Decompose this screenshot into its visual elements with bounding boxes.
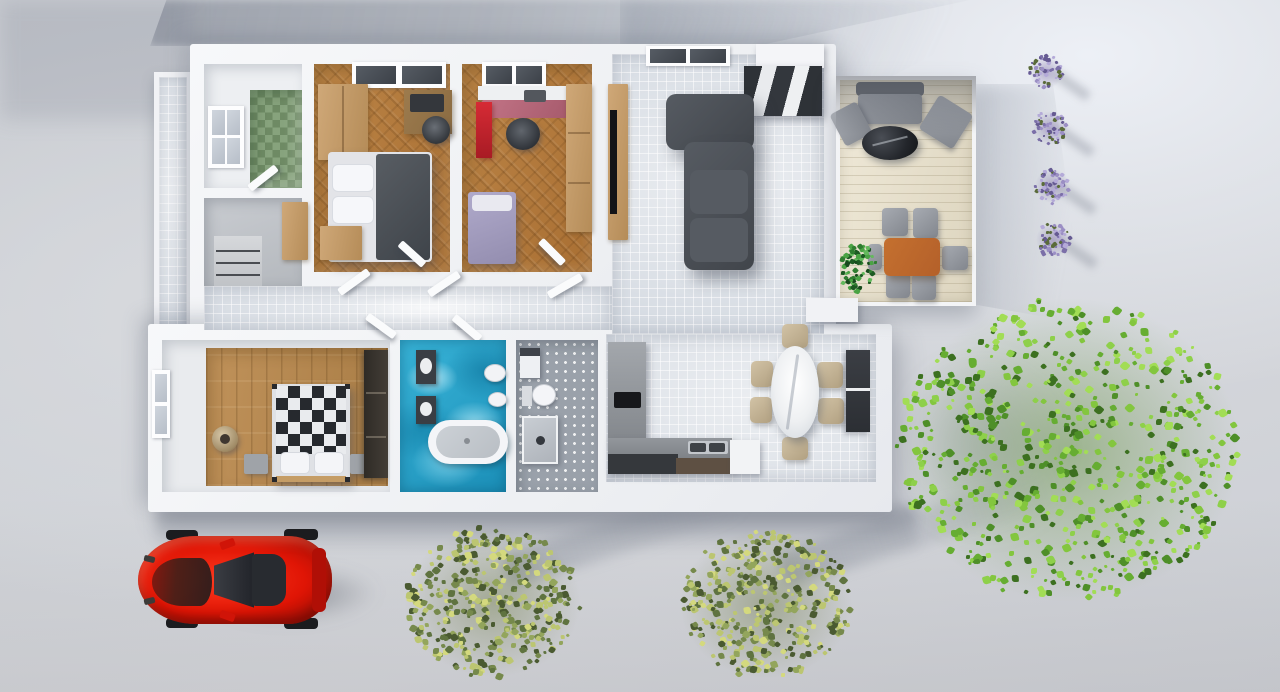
step-line (216, 250, 260, 252)
pillow (314, 452, 344, 474)
cooktop (614, 392, 641, 408)
dining-chair (817, 362, 843, 388)
step-line (216, 274, 260, 276)
window-pane (650, 49, 686, 63)
cabinet-front-wood (676, 458, 730, 474)
checkered-duvet (276, 386, 346, 454)
window-pane (212, 110, 225, 135)
window-pane (516, 66, 542, 84)
window-pane (227, 110, 240, 135)
laptop (410, 94, 444, 112)
window-pane (690, 49, 726, 63)
credenza (756, 44, 824, 68)
living-window (646, 46, 730, 66)
bathtub-drain (464, 438, 470, 444)
wardrobe (318, 84, 368, 160)
washbasin (420, 402, 432, 416)
car-hood (152, 558, 212, 606)
bed-post (272, 477, 277, 482)
sink-basin (690, 443, 706, 452)
sofa-chaise-section (684, 142, 754, 270)
kitchen-column (608, 342, 646, 440)
unit-seam (846, 388, 870, 391)
bed-post (345, 384, 350, 389)
step-line (216, 262, 260, 264)
window-pane (212, 138, 225, 164)
bed-single (468, 192, 516, 264)
wardrobe-dark (364, 350, 388, 478)
pillow (472, 195, 512, 211)
bed-post (345, 477, 350, 482)
dining-chair (751, 361, 773, 387)
shower (522, 416, 558, 464)
dishwasher (730, 440, 760, 474)
terrace-strip (154, 72, 192, 332)
counter-front-dark (608, 454, 678, 474)
vanity (416, 396, 436, 424)
pillow (280, 452, 310, 474)
marble-streak (872, 136, 907, 147)
window-pane (356, 66, 396, 84)
wardrobe-seam (342, 86, 344, 158)
washbasin-unit (520, 348, 540, 378)
car-roof-glass (252, 554, 286, 606)
dining-wall-unit (846, 350, 870, 432)
nightstand (244, 454, 268, 474)
toilet (532, 384, 556, 406)
basket-opening (220, 434, 230, 444)
pillow (332, 164, 374, 192)
patio-chair (912, 274, 936, 300)
dining-chair (782, 437, 808, 460)
kitchen-sink (688, 441, 728, 454)
sports-car (136, 528, 336, 630)
wardrobe-seam (568, 182, 590, 184)
patio-chair (882, 208, 908, 236)
guest-window (152, 370, 170, 438)
desk-chair (422, 116, 450, 144)
vanity (416, 350, 436, 384)
tall-cabinet (744, 66, 822, 116)
patio-chair (942, 246, 968, 270)
patio-step (806, 298, 858, 322)
wardrobe-seam (366, 436, 386, 438)
dining-chair (818, 398, 844, 424)
dining-chair (782, 324, 808, 348)
bed-post (272, 384, 277, 389)
patio-table (884, 238, 940, 276)
toilet-tank (522, 386, 532, 406)
round-basket (212, 426, 238, 452)
window-pane (155, 374, 167, 402)
shower-drain (536, 436, 545, 445)
pink-rug (482, 100, 570, 118)
entry-closet (282, 202, 308, 260)
dresser (320, 226, 362, 260)
patio-chair (868, 244, 882, 270)
red-unit (476, 102, 492, 158)
car-rear-band (312, 548, 326, 612)
window-pane (402, 66, 442, 84)
utility-green-tile (250, 90, 302, 188)
utility-window (208, 106, 244, 168)
bathtub (428, 420, 508, 464)
sink-basin (709, 443, 725, 452)
desk-chair (506, 118, 540, 150)
pergola-shade (836, 76, 976, 134)
bed-checkered (272, 384, 350, 482)
bed-base (276, 476, 346, 482)
tv-wall (608, 84, 628, 240)
wardrobe-seam (366, 392, 386, 394)
marble-vein (786, 354, 800, 430)
front-door-steps (214, 236, 262, 288)
toilet (484, 364, 506, 382)
bidet (488, 392, 507, 407)
window-pane (227, 138, 240, 164)
washbasin (420, 358, 432, 374)
sofa-cushion (690, 218, 748, 262)
kitchen-counter (608, 438, 732, 474)
wardrobe (566, 84, 592, 232)
laptop (524, 90, 546, 102)
wardrobe-seam (568, 132, 590, 134)
dining-chair (750, 397, 772, 423)
dining-table (771, 346, 819, 438)
tv-screen (610, 110, 617, 214)
bedroom-kids-window (482, 62, 546, 88)
patio-chair (913, 208, 938, 238)
sofa-cushion (690, 170, 748, 214)
pillow (332, 196, 374, 224)
washbasin-top (520, 348, 540, 356)
window-pane (155, 406, 167, 434)
window-pane (486, 66, 512, 84)
floorplan-render (0, 0, 1280, 692)
